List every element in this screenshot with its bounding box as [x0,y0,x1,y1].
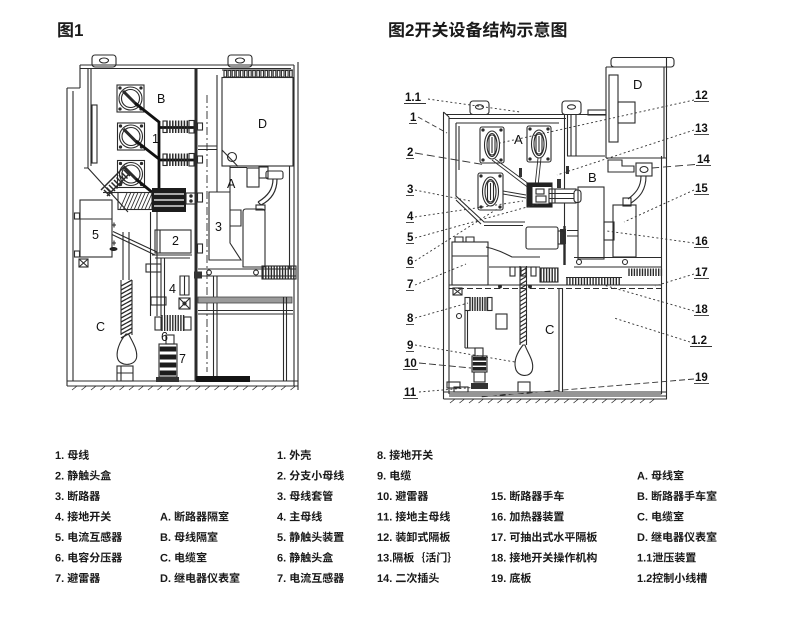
svg-text:8: 8 [407,313,414,325]
svg-text:B: B [588,170,597,185]
svg-text:7: 7 [179,352,186,366]
svg-text:C: C [545,322,554,337]
svg-text:6: 6 [407,256,413,268]
svg-text:6: 6 [161,330,168,344]
svg-text:A: A [514,132,523,147]
svg-text:16: 16 [695,236,708,248]
svg-text:1.2: 1.2 [691,335,707,347]
svg-text:1.1: 1.1 [405,92,422,104]
svg-text:14: 14 [697,154,710,166]
svg-text:5: 5 [92,228,99,242]
svg-text:5: 5 [407,232,414,244]
svg-text:2: 2 [172,234,179,248]
svg-text:10: 10 [404,358,417,370]
svg-text:15: 15 [695,183,708,195]
svg-text:18: 18 [695,304,708,316]
svg-text:3: 3 [215,220,222,234]
svg-text:1: 1 [152,132,159,146]
svg-text:9: 9 [407,340,413,352]
svg-text:17: 17 [695,267,708,279]
svg-text:12: 12 [695,90,708,102]
svg-text:4: 4 [169,282,176,296]
svg-text:3: 3 [407,184,413,196]
svg-text:A: A [227,177,236,191]
svg-text:D: D [633,77,642,92]
svg-text:1: 1 [410,112,417,124]
svg-text:13: 13 [695,123,708,135]
svg-text:2: 2 [407,147,413,159]
svg-text:C: C [96,320,105,334]
svg-text:7: 7 [407,279,413,291]
svg-text:B: B [157,92,165,106]
svg-text:4: 4 [407,211,414,223]
svg-text:11: 11 [404,387,417,399]
svg-text:19: 19 [695,372,708,384]
svg-text:D: D [258,117,267,131]
